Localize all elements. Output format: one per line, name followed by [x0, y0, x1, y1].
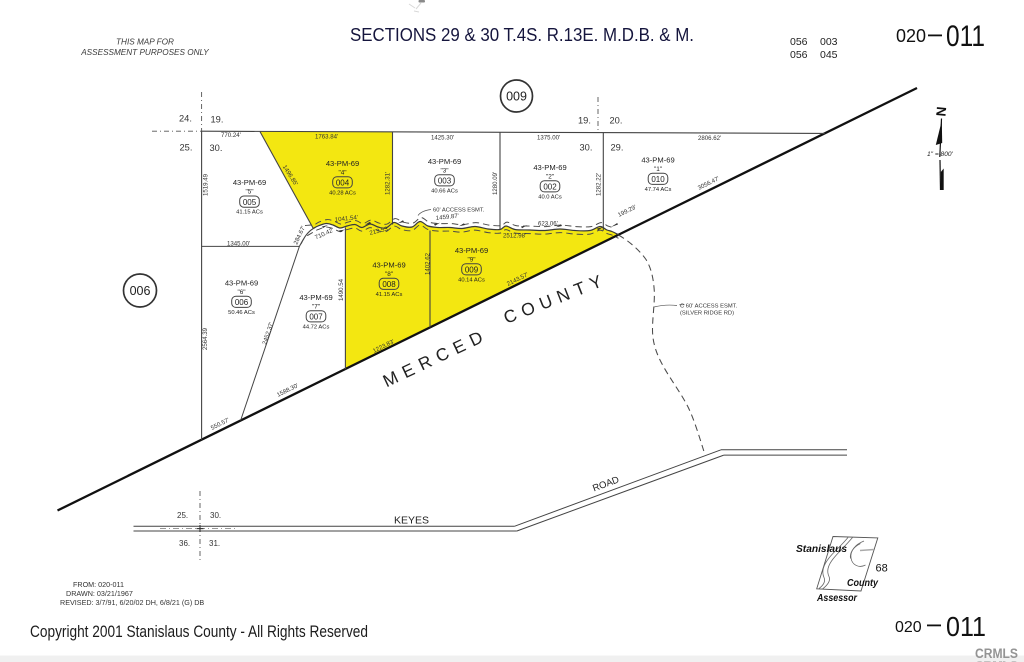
svg-text:1" = 800': 1" = 800'	[927, 151, 954, 158]
svg-text:THIS MAP FOR: THIS MAP FOR	[116, 38, 174, 47]
svg-text:1375.00': 1375.00'	[537, 135, 560, 142]
svg-text:County: County	[847, 577, 879, 589]
svg-text:REVISED: 3/7/91, 6/20/02 DH, 6: REVISED: 3/7/91, 6/20/02 DH, 6/8/21 (G) …	[60, 598, 204, 607]
svg-text:1345.00': 1345.00'	[227, 241, 250, 248]
svg-text:Assessor: Assessor	[816, 592, 858, 604]
svg-text:36.: 36.	[179, 539, 190, 548]
svg-text:"1": "1"	[654, 166, 662, 173]
svg-text:1763.84': 1763.84'	[315, 134, 338, 141]
svg-text:41.15 ACs: 41.15 ACs	[236, 210, 263, 216]
svg-text:"9": "9"	[467, 257, 475, 264]
svg-text:19.: 19.	[211, 114, 224, 124]
svg-text:40.14 ACs: 40.14 ACs	[458, 278, 485, 284]
svg-text:1282.31': 1282.31'	[385, 172, 392, 195]
svg-text:40.66 ACs: 40.66 ACs	[431, 189, 458, 195]
svg-text:006: 006	[235, 298, 249, 307]
svg-text:FROM: 020-011: FROM: 020-011	[73, 580, 124, 589]
svg-text:1519.49: 1519.49	[203, 173, 210, 196]
svg-text:ASSESSMENT PURPOSES ONLY: ASSESSMENT PURPOSES ONLY	[80, 48, 209, 57]
svg-text:010: 010	[651, 175, 665, 184]
svg-text:006: 006	[130, 284, 151, 298]
svg-text:43-PM-69: 43-PM-69	[326, 159, 359, 168]
svg-text:020: 020	[895, 619, 922, 636]
svg-text:1280.09': 1280.09'	[492, 172, 499, 195]
svg-text:40.28 ACs: 40.28 ACs	[329, 191, 356, 197]
svg-text:770.24': 770.24'	[221, 132, 241, 139]
svg-text:1425.30': 1425.30'	[431, 135, 454, 142]
svg-text:DRAWN: 03/21/1967: DRAWN: 03/21/1967	[66, 589, 133, 598]
svg-text:002: 002	[543, 183, 557, 192]
svg-text:24.: 24.	[179, 114, 192, 124]
svg-text:41.15 ACs: 41.15 ACs	[376, 292, 403, 298]
svg-text:"2": "2"	[546, 174, 554, 181]
svg-text:005: 005	[243, 198, 257, 207]
svg-text:30.: 30.	[210, 143, 223, 153]
svg-text:44.72 ACs: 44.72 ACs	[303, 325, 330, 331]
svg-text:2806.62': 2806.62'	[698, 135, 721, 142]
svg-text:43-PM-69: 43-PM-69	[641, 156, 674, 165]
svg-text:003: 003	[438, 177, 452, 186]
svg-text:43-PM-69: 43-PM-69	[299, 293, 332, 302]
svg-text:68: 68	[876, 563, 888, 575]
svg-text:C 60' ACCESS ESMT.: C 60' ACCESS ESMT.	[680, 304, 738, 310]
svg-text:20.: 20.	[610, 116, 623, 126]
svg-text:43-PM-69: 43-PM-69	[225, 279, 258, 288]
svg-text:Stanislaus: Stanislaus	[796, 543, 847, 555]
svg-text:Copyright 2001 Stanislaus Coun: Copyright 2001 Stanislaus County - All R…	[30, 622, 368, 641]
svg-text:43-PM-69: 43-PM-69	[372, 261, 405, 270]
svg-text:30.: 30.	[210, 511, 221, 520]
svg-text:"7": "7"	[312, 304, 320, 311]
svg-text:31.: 31.	[209, 539, 220, 548]
svg-text:2564.39: 2564.39	[202, 327, 209, 350]
svg-text:2512.98': 2512.98'	[503, 233, 526, 240]
svg-text:045: 045	[820, 49, 838, 61]
svg-text:43-PM-69: 43-PM-69	[533, 163, 566, 172]
svg-text:011: 011	[946, 611, 986, 642]
svg-text:40.0 ACs: 40.0 ACs	[538, 195, 562, 201]
svg-text:009: 009	[465, 266, 479, 275]
svg-text:"8": "8"	[385, 271, 393, 278]
svg-text:056: 056	[790, 49, 808, 61]
svg-text:47.74 ACs: 47.74 ACs	[645, 187, 672, 193]
svg-text:1490.54: 1490.54	[338, 278, 345, 301]
svg-text:50.46 ACs: 50.46 ACs	[228, 310, 255, 316]
svg-text:19.: 19.	[578, 116, 591, 126]
svg-text:"4": "4"	[338, 170, 346, 177]
svg-text:43-PM-69: 43-PM-69	[428, 157, 461, 166]
svg-text:N: N	[933, 106, 949, 117]
svg-text:43-PM-69: 43-PM-69	[455, 246, 488, 255]
svg-text:30.: 30.	[580, 143, 593, 153]
svg-text:25.: 25.	[180, 142, 193, 152]
svg-text:003: 003	[820, 36, 838, 48]
svg-text:SECTIONS 29 & 30 T.4S. R.13E.: SECTIONS 29 & 30 T.4S. R.13E. M.D.B. & M…	[350, 24, 694, 45]
svg-text:1282.22': 1282.22'	[595, 173, 602, 196]
svg-text:056: 056	[790, 36, 808, 48]
svg-text:009: 009	[506, 90, 527, 104]
svg-text:KEYES: KEYES	[394, 516, 429, 527]
svg-text:"3": "3"	[440, 168, 448, 175]
svg-text:020: 020	[896, 26, 926, 46]
svg-text:"5": "5"	[245, 189, 253, 196]
svg-text:29.: 29.	[611, 143, 624, 153]
svg-text:004: 004	[336, 179, 350, 188]
svg-text:007: 007	[309, 313, 323, 322]
svg-text:011: 011	[946, 20, 985, 53]
svg-text:60' ACCESS ESMT.: 60' ACCESS ESMT.	[433, 208, 485, 214]
svg-text:623.06': 623.06'	[538, 221, 558, 228]
svg-text:1402.62: 1402.62	[425, 252, 432, 275]
svg-text:"6": "6"	[237, 289, 245, 296]
svg-text:43-PM-69: 43-PM-69	[233, 178, 266, 187]
svg-text:25.: 25.	[177, 511, 188, 520]
svg-text:008: 008	[382, 280, 396, 289]
svg-text:(SILVER RIDGE RD): (SILVER RIDGE RD)	[680, 311, 734, 317]
